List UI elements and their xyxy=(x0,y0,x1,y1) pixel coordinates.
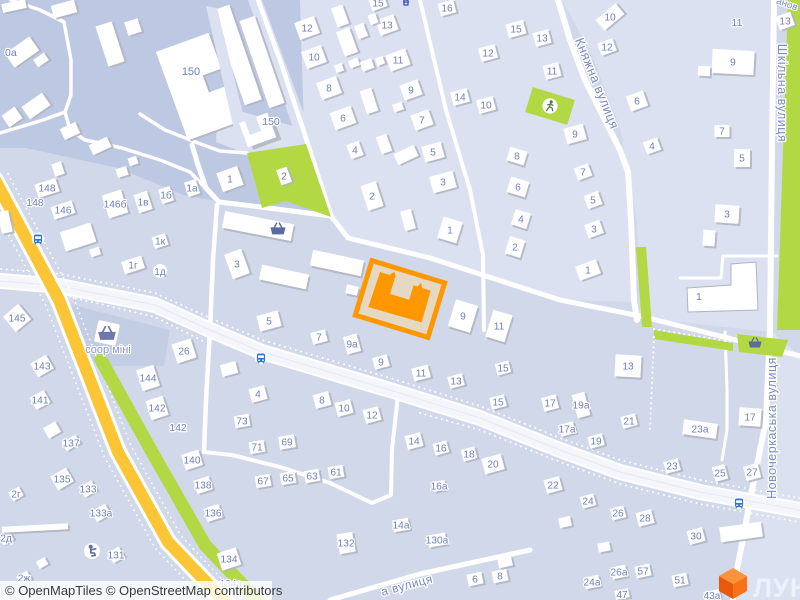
svg-text:3: 3 xyxy=(724,210,730,221)
svg-text:9: 9 xyxy=(572,130,578,141)
svg-text:13: 13 xyxy=(381,21,393,32)
svg-text:1в: 1в xyxy=(137,198,148,209)
svg-text:2д: 2д xyxy=(0,534,12,545)
svg-text:12: 12 xyxy=(482,49,494,60)
svg-text:67: 67 xyxy=(257,477,269,488)
svg-text:5: 5 xyxy=(266,317,272,328)
svg-text:23: 23 xyxy=(666,462,678,473)
svg-text:10: 10 xyxy=(338,404,350,415)
svg-text:4: 4 xyxy=(255,390,261,401)
svg-text:17: 17 xyxy=(544,399,556,410)
svg-text:5: 5 xyxy=(739,154,745,165)
svg-text:141: 141 xyxy=(32,396,49,407)
svg-text:6: 6 xyxy=(340,114,346,125)
svg-text:133а: 133а xyxy=(90,509,113,520)
svg-text:1б: 1б xyxy=(160,190,172,202)
svg-text:11: 11 xyxy=(732,17,743,29)
svg-text:21: 21 xyxy=(623,417,635,428)
svg-text:22: 22 xyxy=(547,481,559,492)
svg-text:142: 142 xyxy=(149,404,166,415)
svg-text:8: 8 xyxy=(326,84,332,95)
svg-text:19а: 19а xyxy=(573,401,590,412)
svg-text:145: 145 xyxy=(9,314,26,325)
svg-text:11: 11 xyxy=(393,56,404,67)
svg-text:8: 8 xyxy=(514,152,520,163)
svg-text:11: 11 xyxy=(494,322,505,333)
svg-text:9: 9 xyxy=(730,58,736,69)
svg-text:13: 13 xyxy=(450,377,462,388)
svg-text:7: 7 xyxy=(316,333,322,344)
svg-text:1д: 1д xyxy=(154,267,166,278)
svg-text:4: 4 xyxy=(352,146,358,157)
svg-text:1а: 1а xyxy=(186,184,198,195)
svg-text:47: 47 xyxy=(616,590,628,600)
svg-text:0а: 0а xyxy=(5,47,17,59)
svg-text:2: 2 xyxy=(369,192,375,203)
svg-text:1: 1 xyxy=(696,292,702,303)
svg-text:9: 9 xyxy=(378,358,384,369)
svg-text:25: 25 xyxy=(714,469,726,480)
svg-text:Новочеркаська вулиця: Новочеркаська вулиця xyxy=(765,357,779,499)
svg-text:Шкільна вулиця: Шкільна вулиця xyxy=(775,44,789,142)
svg-text:16: 16 xyxy=(441,4,453,15)
svg-text:134: 134 xyxy=(221,555,238,566)
svg-text:144: 144 xyxy=(140,374,157,385)
svg-text:coop міні: coop міні xyxy=(85,344,130,356)
svg-text:14а: 14а xyxy=(393,521,410,532)
svg-text:10: 10 xyxy=(308,53,320,64)
svg-text:7: 7 xyxy=(580,168,586,179)
svg-text:4: 4 xyxy=(649,142,655,153)
svg-text:12: 12 xyxy=(301,24,313,35)
svg-text:1: 1 xyxy=(585,266,591,277)
svg-text:24а: 24а xyxy=(584,578,601,589)
svg-text:11: 11 xyxy=(547,67,558,78)
svg-text:18: 18 xyxy=(463,450,475,461)
svg-text:150: 150 xyxy=(182,66,200,78)
svg-text:51: 51 xyxy=(674,576,686,587)
svg-text:135: 135 xyxy=(54,475,71,486)
svg-text:57: 57 xyxy=(637,567,649,578)
svg-text:12: 12 xyxy=(366,411,378,422)
svg-text:13: 13 xyxy=(622,362,634,373)
svg-text:30: 30 xyxy=(690,532,702,543)
svg-text:28: 28 xyxy=(639,514,651,525)
svg-text:1: 1 xyxy=(227,175,233,186)
svg-text:ЛУН: ЛУН xyxy=(753,573,800,600)
svg-text:26: 26 xyxy=(178,347,190,358)
svg-text:130а: 130а xyxy=(426,536,449,547)
svg-text:26: 26 xyxy=(612,509,624,520)
svg-text:12: 12 xyxy=(601,43,613,54)
svg-text:7: 7 xyxy=(719,127,725,138)
svg-text:16а: 16а xyxy=(431,482,448,493)
svg-text:9: 9 xyxy=(460,312,466,323)
svg-text:2: 2 xyxy=(512,243,518,254)
svg-text:69: 69 xyxy=(281,438,293,449)
svg-text:150: 150 xyxy=(262,116,280,128)
svg-text:137: 137 xyxy=(63,439,80,450)
svg-text:148: 148 xyxy=(39,184,56,195)
svg-text:9: 9 xyxy=(408,86,414,97)
svg-text:15: 15 xyxy=(372,0,384,10)
svg-text:143: 143 xyxy=(34,362,51,373)
svg-text:61: 61 xyxy=(330,468,342,479)
svg-text:8: 8 xyxy=(319,396,325,407)
svg-text:10: 10 xyxy=(480,101,492,112)
svg-text:142: 142 xyxy=(169,422,187,434)
svg-text:3: 3 xyxy=(440,178,446,189)
svg-text:138: 138 xyxy=(195,481,212,492)
svg-text:13: 13 xyxy=(536,34,548,45)
svg-text:63: 63 xyxy=(306,472,318,483)
svg-text:27: 27 xyxy=(746,468,758,479)
svg-text:26а: 26а xyxy=(611,568,628,579)
svg-text:73: 73 xyxy=(236,417,248,428)
svg-text:132: 132 xyxy=(338,539,355,550)
svg-text:17: 17 xyxy=(744,413,756,424)
svg-text:15: 15 xyxy=(492,398,504,409)
svg-text:1к: 1к xyxy=(155,237,166,248)
svg-text:5: 5 xyxy=(430,148,436,159)
svg-text:1: 1 xyxy=(447,226,453,237)
svg-text:3: 3 xyxy=(591,225,597,236)
svg-text:6: 6 xyxy=(634,97,640,108)
svg-text:© OpenMapTiles © OpenStreetMap: © OpenMapTiles © OpenStreetMap contribut… xyxy=(5,583,283,598)
svg-text:17а: 17а xyxy=(559,425,576,436)
svg-text:65: 65 xyxy=(282,474,294,485)
svg-text:9а: 9а xyxy=(346,340,358,351)
svg-text:13: 13 xyxy=(779,17,791,28)
svg-text:14: 14 xyxy=(454,93,466,104)
svg-text:3: 3 xyxy=(234,260,240,271)
svg-text:10: 10 xyxy=(604,13,616,24)
svg-text:23а: 23а xyxy=(692,425,709,436)
svg-text:43а: 43а xyxy=(704,591,721,600)
svg-text:20: 20 xyxy=(487,460,499,471)
svg-text:16: 16 xyxy=(435,444,447,455)
svg-text:24: 24 xyxy=(582,497,594,508)
svg-text:11: 11 xyxy=(416,369,427,380)
svg-text:148: 148 xyxy=(26,197,44,209)
svg-text:7: 7 xyxy=(419,116,425,127)
svg-text:2г: 2г xyxy=(11,490,21,501)
svg-text:6: 6 xyxy=(472,575,478,586)
svg-text:71: 71 xyxy=(251,443,263,454)
svg-text:1г: 1г xyxy=(128,261,138,272)
svg-text:133: 133 xyxy=(80,485,97,496)
svg-text:131: 131 xyxy=(108,551,125,562)
svg-text:15: 15 xyxy=(497,364,509,375)
svg-text:6: 6 xyxy=(515,183,521,194)
svg-text:8: 8 xyxy=(497,572,503,583)
svg-text:146б: 146б xyxy=(104,199,127,211)
svg-text:140: 140 xyxy=(184,456,201,467)
svg-text:2: 2 xyxy=(281,172,287,183)
svg-text:146: 146 xyxy=(55,206,72,217)
svg-text:4: 4 xyxy=(518,215,524,226)
svg-text:136: 136 xyxy=(205,509,222,520)
svg-text:19: 19 xyxy=(590,437,602,448)
svg-text:14: 14 xyxy=(408,437,420,448)
svg-text:15: 15 xyxy=(510,25,522,36)
svg-text:5: 5 xyxy=(590,196,596,207)
